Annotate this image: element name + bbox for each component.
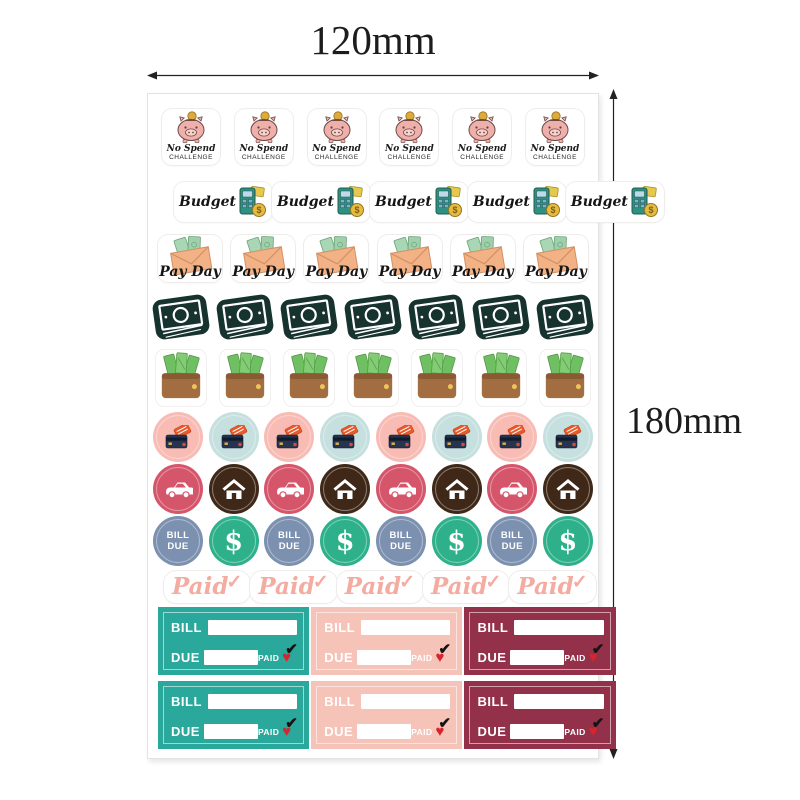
piggy-bank-icon <box>391 111 427 143</box>
no-spend-sticker: No Spend CHALLENGE <box>308 109 366 165</box>
budget-sticker: Budget $ <box>370 182 468 222</box>
no-spend-subtitle: CHALLENGE <box>169 154 213 162</box>
car-icon <box>497 478 527 500</box>
cash-sticker <box>340 286 407 348</box>
dollar-circle-sticker: $ <box>320 516 370 566</box>
wallet-cash-icon <box>542 351 588 405</box>
wallet-sticker <box>156 350 206 406</box>
mortgage-sticker <box>209 464 259 514</box>
credit-cards-icon <box>275 425 303 449</box>
credit-card-row <box>148 412 598 462</box>
no-spend-subtitle: CHALLENGE <box>315 154 359 162</box>
bill-slip-row: BILL DUE PAID ♥ ✔ BILL <box>158 681 579 749</box>
paid-label: Paid <box>172 573 228 601</box>
slip-bill-label: BILL <box>477 694 508 709</box>
budget-label: Budget <box>571 194 628 210</box>
bill-due-circle-sticker: BILL DUE <box>264 516 314 566</box>
wallet-cash-icon <box>478 351 524 405</box>
payday-label: Pay Day <box>232 264 294 280</box>
no-spend-subtitle: CHALLENGE <box>533 154 577 162</box>
cash-sticker <box>212 286 279 348</box>
wallet-sticker <box>348 350 398 406</box>
payday-row: Pay Day Pay Day <box>148 228 598 288</box>
due-blank-field <box>357 650 411 665</box>
slip-bill-label: BILL <box>324 694 355 709</box>
paid-sticker: Paid ✓ <box>423 571 509 603</box>
banknote-stack-icon <box>404 286 471 348</box>
house-icon <box>443 477 471 501</box>
budget-sticker: Budget $ <box>174 182 272 222</box>
slip-paid-label: PAID <box>411 653 432 663</box>
heart-check-icon: ♥ ✔ <box>282 650 297 665</box>
heart-check-icon: ♥ ✔ <box>435 724 450 739</box>
slip-bill-label: BILL <box>171 620 202 635</box>
wallet-sticker <box>220 350 270 406</box>
coin-dollar-glyph: $ <box>354 205 359 215</box>
bill-dollar-row: BILL DUE $ BILL DUE $ <box>148 516 598 566</box>
dollar-circle-sticker: $ <box>432 516 482 566</box>
budget-label: Budget <box>375 194 432 210</box>
heart-check-icon: ♥ ✔ <box>589 650 604 665</box>
bill-blank-field <box>208 694 297 709</box>
slip-bill-label: BILL <box>477 620 508 635</box>
credit-card-sticker <box>153 412 203 462</box>
bill-blank-field <box>208 620 297 635</box>
wallet-cash-icon <box>158 351 204 405</box>
wallet-cash-icon <box>222 351 268 405</box>
check-icon: ✓ <box>226 571 242 594</box>
payday-label: Pay Day <box>306 264 368 280</box>
cash-sticker <box>404 286 471 348</box>
paid-sticker: Paid ✓ <box>337 571 423 603</box>
credit-card-sticker <box>432 412 482 462</box>
payday-sticker: Pay Day <box>304 235 368 282</box>
slip-bill-label: BILL <box>324 620 355 635</box>
no-spend-sticker: No Spend CHALLENGE <box>526 109 584 165</box>
no-spend-title: No Spend <box>458 144 507 154</box>
wallet-cash-icon <box>350 351 396 405</box>
piggy-bank-icon <box>246 111 282 143</box>
paid-label: Paid <box>431 573 487 601</box>
no-spend-sticker: No Spend CHALLENGE <box>453 109 511 165</box>
paid-row: Paid ✓ Paid ✓ Paid ✓ Paid ✓ Paid ✓ <box>148 568 598 606</box>
slip-due-label: DUE <box>171 650 200 665</box>
paid-sticker: Paid ✓ <box>164 571 250 603</box>
credit-cards-icon <box>387 425 415 449</box>
check-icon: ✓ <box>399 571 415 594</box>
payday-label: Pay Day <box>452 264 514 280</box>
credit-card-sticker <box>209 412 259 462</box>
calculator-coin-icon: $ <box>629 185 659 219</box>
payday-label: Pay Day <box>525 264 587 280</box>
slip-due-label: DUE <box>477 724 506 739</box>
credit-cards-icon <box>164 425 192 449</box>
bill-due-text: BILL DUE <box>278 530 301 552</box>
car-house-row <box>148 464 598 514</box>
due-blank-field <box>510 724 564 739</box>
coin-dollar-glyph: $ <box>452 205 457 215</box>
no-spend-row: No Spend CHALLENGE No <box>148 108 598 166</box>
no-spend-sticker: No Spend CHALLENGE <box>235 109 293 165</box>
credit-cards-icon <box>331 425 359 449</box>
car-payment-sticker <box>153 464 203 514</box>
budget-sticker: Budget $ <box>272 182 370 222</box>
dollar-sign: $ <box>224 526 243 557</box>
budget-label: Budget <box>277 194 334 210</box>
no-spend-title: No Spend <box>531 144 580 154</box>
dollar-sign: $ <box>559 526 578 557</box>
credit-card-sticker <box>376 412 426 462</box>
wallet-sticker <box>540 350 590 406</box>
slip-due-label: DUE <box>324 650 353 665</box>
paid-label: Paid <box>345 573 401 601</box>
wallet-row <box>148 347 598 409</box>
budget-label: Budget <box>179 194 236 210</box>
payday-sticker: Pay Day <box>378 235 442 282</box>
height-dimension-label: 180mm <box>626 399 742 443</box>
calculator-coin-icon: $ <box>531 185 561 219</box>
bill-due-circle-sticker: BILL DUE <box>487 516 537 566</box>
no-spend-sticker: No Spend CHALLENGE <box>162 109 220 165</box>
bill-blank-field <box>361 694 450 709</box>
paid-label: Paid <box>258 573 314 601</box>
coin-dollar-glyph: $ <box>256 205 261 215</box>
banknote-stack-icon <box>212 286 279 348</box>
cash-sticker <box>276 286 343 348</box>
slip-due-label: DUE <box>477 650 506 665</box>
width-dimension-arrow <box>147 69 599 82</box>
bill-due-slip-pink: BILL DUE PAID ♥ ✔ <box>311 681 462 749</box>
payday-label: Pay Day <box>379 264 441 280</box>
dollar-circle-sticker: $ <box>543 516 593 566</box>
bill-due-slip-maroon: BILL DUE PAID ♥ ✔ <box>464 681 615 749</box>
mortgage-sticker <box>543 464 593 514</box>
mortgage-sticker <box>320 464 370 514</box>
calculator-coin-icon: $ <box>237 185 267 219</box>
mortgage-sticker <box>432 464 482 514</box>
payday-sticker: Pay Day <box>524 235 588 282</box>
no-spend-title: No Spend <box>167 144 216 154</box>
cash-sticker <box>148 286 215 348</box>
paid-label: Paid <box>517 573 573 601</box>
credit-card-sticker <box>264 412 314 462</box>
slip-paid-label: PAID <box>564 727 585 737</box>
cash-sticker <box>468 286 535 348</box>
due-blank-field <box>204 724 258 739</box>
bill-due-text: BILL DUE <box>389 530 412 552</box>
product-photo: 120mm 180mm <box>0 0 800 800</box>
no-spend-sticker: No Spend CHALLENGE <box>380 109 438 165</box>
piggy-bank-icon <box>173 111 209 143</box>
piggy-bank-icon <box>319 111 355 143</box>
piggy-bank-icon <box>537 111 573 143</box>
banknote-stack-icon <box>340 286 407 348</box>
cash-row <box>148 286 598 348</box>
bill-due-circle-sticker: BILL DUE <box>153 516 203 566</box>
credit-cards-icon <box>554 425 582 449</box>
dollar-circle-sticker: $ <box>209 516 259 566</box>
bill-due-text: BILL DUE <box>501 530 524 552</box>
house-icon <box>220 477 248 501</box>
no-spend-title: No Spend <box>385 144 434 154</box>
no-spend-subtitle: CHALLENGE <box>387 154 431 162</box>
house-icon <box>554 477 582 501</box>
due-blank-field <box>510 650 564 665</box>
wallet-sticker <box>284 350 334 406</box>
calculator-coin-icon: $ <box>433 185 463 219</box>
banknote-stack-icon <box>148 286 215 348</box>
bill-due-text: BILL DUE <box>167 530 190 552</box>
wallet-cash-icon <box>414 351 460 405</box>
coin-dollar-glyph: $ <box>550 205 555 215</box>
sticker-sheet: No Spend CHALLENGE No <box>147 93 599 759</box>
credit-card-sticker <box>543 412 593 462</box>
budget-label: Budget <box>473 194 530 210</box>
piggy-bank-icon <box>464 111 500 143</box>
car-icon <box>274 478 304 500</box>
payday-sticker: Pay Day <box>158 235 222 282</box>
no-spend-title: No Spend <box>239 144 288 154</box>
heart-check-icon: ♥ ✔ <box>589 724 604 739</box>
credit-card-sticker <box>487 412 537 462</box>
car-icon <box>386 478 416 500</box>
no-spend-subtitle: CHALLENGE <box>242 154 286 162</box>
payday-sticker: Pay Day <box>451 235 515 282</box>
check-icon: ✓ <box>572 571 588 594</box>
car-payment-sticker <box>376 464 426 514</box>
due-blank-field <box>204 650 258 665</box>
credit-cards-icon <box>498 425 526 449</box>
payday-sticker: Pay Day <box>231 235 295 282</box>
heart-check-icon: ♥ ✔ <box>282 724 297 739</box>
car-payment-sticker <box>264 464 314 514</box>
slip-bill-label: BILL <box>171 694 202 709</box>
heart-check-icon: ♥ ✔ <box>435 650 450 665</box>
bill-due-slip-teal: BILL DUE PAID ♥ ✔ <box>158 607 309 675</box>
banknote-stack-icon <box>532 286 599 348</box>
slip-paid-label: PAID <box>564 653 585 663</box>
bill-due-slip-pink: BILL DUE PAID ♥ ✔ <box>311 607 462 675</box>
cash-sticker <box>532 286 599 348</box>
wallet-sticker <box>476 350 526 406</box>
bill-due-slip-teal: BILL DUE PAID ♥ ✔ <box>158 681 309 749</box>
check-icon: ✓ <box>485 571 501 594</box>
dollar-sign: $ <box>336 526 355 557</box>
calculator-coin-icon: $ <box>335 185 365 219</box>
width-dimension-label: 120mm <box>147 16 599 64</box>
slip-paid-label: PAID <box>258 653 279 663</box>
car-icon <box>163 478 193 500</box>
credit-card-sticker <box>320 412 370 462</box>
banknote-stack-icon <box>468 286 535 348</box>
bill-blank-field <box>514 694 603 709</box>
paid-sticker: Paid ✓ <box>250 571 336 603</box>
coin-dollar-glyph: $ <box>648 205 653 215</box>
paid-sticker: Paid ✓ <box>509 571 595 603</box>
credit-cards-icon <box>220 425 248 449</box>
budget-row: Budget $ Budget <box>148 178 598 226</box>
no-spend-subtitle: CHALLENGE <box>460 154 504 162</box>
credit-cards-icon <box>443 425 471 449</box>
bill-slip-rows: BILL DUE PAID ♥ ✔ BILL <box>158 607 579 749</box>
payday-label: Pay Day <box>159 264 221 280</box>
bill-blank-field <box>361 620 450 635</box>
bill-due-slip-maroon: BILL DUE PAID ♥ ✔ <box>464 607 615 675</box>
bill-blank-field <box>514 620 603 635</box>
wallet-sticker <box>412 350 462 406</box>
slip-paid-label: PAID <box>258 727 279 737</box>
slip-due-label: DUE <box>324 724 353 739</box>
check-icon: ✓ <box>313 571 329 594</box>
due-blank-field <box>357 724 411 739</box>
budget-sticker: Budget $ <box>566 182 664 222</box>
dollar-sign: $ <box>447 526 466 557</box>
bill-slip-row: BILL DUE PAID ♥ ✔ BILL <box>158 607 579 675</box>
house-icon <box>331 477 359 501</box>
bill-due-circle-sticker: BILL DUE <box>376 516 426 566</box>
no-spend-title: No Spend <box>312 144 361 154</box>
banknote-stack-icon <box>276 286 343 348</box>
slip-paid-label: PAID <box>411 727 432 737</box>
car-payment-sticker <box>487 464 537 514</box>
budget-sticker: Budget $ <box>468 182 566 222</box>
wallet-cash-icon <box>286 351 332 405</box>
slip-due-label: DUE <box>171 724 200 739</box>
